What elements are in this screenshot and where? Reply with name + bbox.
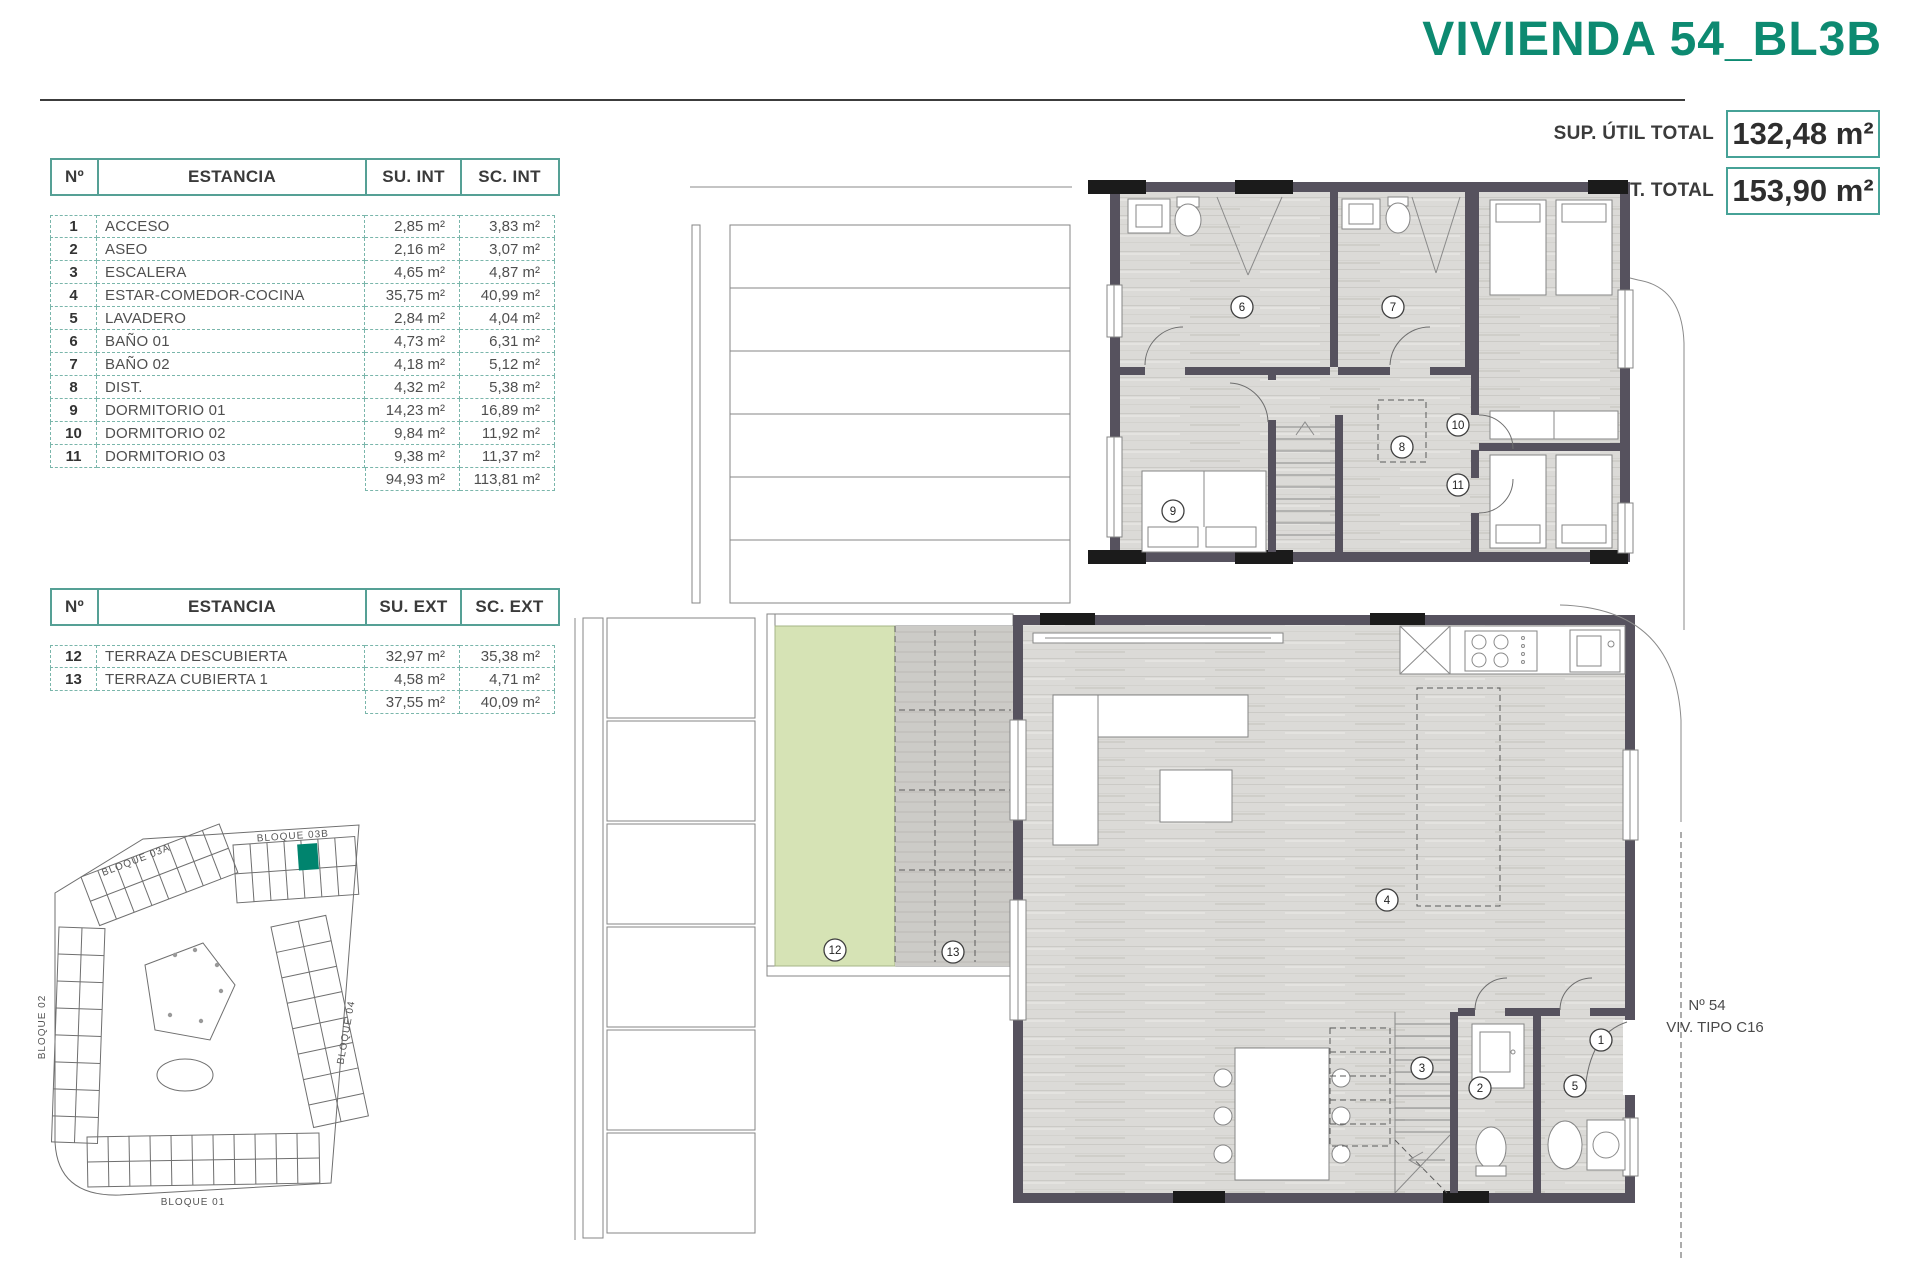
central-amenities bbox=[145, 943, 235, 1091]
room-marker-number: 5 bbox=[1572, 1081, 1578, 1093]
table-row: 13TERRAZA CUBIERTA 14,58 m²4,71 m² bbox=[50, 668, 560, 691]
table-cell: 4,73 m² bbox=[365, 330, 460, 353]
table-cell: BAÑO 01 bbox=[97, 330, 365, 353]
table-cell: DORMITORIO 02 bbox=[97, 422, 365, 445]
table-cell: 7 bbox=[50, 353, 97, 376]
table-cell: 16,89 m² bbox=[460, 399, 555, 422]
table-cell: BAÑO 02 bbox=[97, 353, 365, 376]
table-cell: DORMITORIO 01 bbox=[97, 399, 365, 422]
table-cell: 11,92 m² bbox=[460, 422, 555, 445]
table-cell: ESCALERA bbox=[97, 261, 365, 284]
balcony-rail bbox=[692, 225, 700, 603]
table-cell: 4,65 m² bbox=[365, 261, 460, 284]
table-cell: 11 bbox=[50, 445, 97, 468]
col-header-su-int: SU. INT bbox=[367, 160, 462, 194]
col-header-sc-ext: SC. EXT bbox=[462, 590, 557, 624]
highlighted-unit bbox=[297, 843, 319, 870]
boundary-tick bbox=[1630, 278, 1638, 280]
block-01-label: BLOQUE 01 bbox=[161, 1197, 226, 1208]
table-cell: 3,83 m² bbox=[460, 215, 555, 238]
table-row: 10DORMITORIO 029,84 m²11,92 m² bbox=[50, 422, 560, 445]
site-boundary bbox=[55, 825, 359, 1195]
interior-table-rows: 1ACCESO2,85 m²3,83 m²2ASEO2,16 m²3,07 m²… bbox=[50, 215, 560, 468]
table-cell: 9,38 m² bbox=[365, 445, 460, 468]
table-cell: 6,31 m² bbox=[460, 330, 555, 353]
table-cell: 35,75 m² bbox=[365, 284, 460, 307]
block-02 bbox=[51, 927, 104, 1143]
unit-number-label: Nº 54 bbox=[1688, 997, 1725, 1014]
table-cell: 10 bbox=[50, 422, 97, 445]
col-header-sc-int: SC. INT bbox=[462, 160, 557, 194]
site-plan: BLOQUE 03A BLOQUE 03B BLOQUE 02 BLOQUE 0… bbox=[25, 815, 370, 1215]
terraza-descubierta bbox=[775, 626, 895, 966]
table-cell: 4,58 m² bbox=[365, 668, 460, 691]
table-cell: 6 bbox=[50, 330, 97, 353]
table-cell: LAVADERO bbox=[97, 307, 365, 330]
table-cell: ESTAR-COMEDOR-COCINA bbox=[97, 284, 365, 307]
block-01 bbox=[87, 1133, 320, 1187]
table-row: 3ESCALERA4,65 m²4,87 m² bbox=[50, 261, 560, 284]
room-marker-number: 11 bbox=[1452, 480, 1464, 492]
table-cell: 4,87 m² bbox=[460, 261, 555, 284]
col-header-estancia: ESTANCIA bbox=[99, 590, 367, 624]
table-row: 6BAÑO 014,73 m²6,31 m² bbox=[50, 330, 560, 353]
table-cell: 4,32 m² bbox=[365, 376, 460, 399]
page-title: VIVIENDA 54_BL3B bbox=[1422, 12, 1882, 67]
table-cell: DORMITORIO 03 bbox=[97, 445, 365, 468]
terrace-rail bbox=[583, 618, 603, 1238]
table-cell: 5 bbox=[50, 307, 97, 330]
room-marker-number: 1 bbox=[1598, 1035, 1604, 1047]
terraza-cubierta-deck bbox=[895, 626, 1013, 966]
table-row: 12TERRAZA DESCUBIERTA32,97 m²35,38 m² bbox=[50, 645, 560, 668]
table-cell: 4,71 m² bbox=[460, 668, 555, 691]
table-cell: 4,18 m² bbox=[365, 353, 460, 376]
header-divider bbox=[40, 99, 1685, 101]
table-cell: 2 bbox=[50, 238, 97, 261]
exterior-table-rows: 12TERRAZA DESCUBIERTA32,97 m²35,38 m²13T… bbox=[50, 645, 560, 691]
table-row: 5LAVADERO2,84 m²4,04 m² bbox=[50, 307, 560, 330]
room-marker-number: 8 bbox=[1399, 442, 1405, 454]
table-cell: 2,85 m² bbox=[365, 215, 460, 238]
table-row: 8DIST.4,32 m²5,38 m² bbox=[50, 376, 560, 399]
exterior-table-header: Nº ESTANCIA SU. EXT SC. EXT bbox=[50, 588, 560, 626]
table-row: 1ACCESO2,85 m²3,83 m² bbox=[50, 215, 560, 238]
table-cell: 4 bbox=[50, 284, 97, 307]
block-04-label: BLOQUE 04 bbox=[336, 1000, 358, 1066]
room-marker-number: 3 bbox=[1419, 1063, 1425, 1075]
table-row: 9DORMITORIO 0114,23 m²16,89 m² bbox=[50, 399, 560, 422]
exterior-table-total-row: 37,55 m² 40,09 m² bbox=[50, 691, 560, 714]
table-cell: TERRAZA DESCUBIERTA bbox=[97, 645, 365, 668]
plan-sheet: VIVIENDA 54_BL3B SUP. ÚTIL TOTAL 132,48 … bbox=[0, 0, 1920, 1280]
room-marker-number: 2 bbox=[1477, 1083, 1483, 1095]
room-marker-number: 4 bbox=[1384, 895, 1391, 907]
table-cell: 2,16 m² bbox=[365, 238, 460, 261]
room-marker-number: 6 bbox=[1239, 302, 1245, 314]
table-cell: 9 bbox=[50, 399, 97, 422]
col-header-num: Nº bbox=[52, 160, 99, 194]
table-cell: ASEO bbox=[97, 238, 365, 261]
table-cell: 35,38 m² bbox=[460, 645, 555, 668]
table-cell: ACCESO bbox=[97, 215, 365, 238]
interior-sc-total: 113,81 m² bbox=[460, 468, 555, 491]
upper-floor-plan: 67891011 bbox=[690, 175, 1700, 637]
table-cell: 1 bbox=[50, 215, 97, 238]
table-row: 4ESTAR-COMEDOR-COCINA35,75 m²40,99 m² bbox=[50, 284, 560, 307]
exterior-areas-table: Nº ESTANCIA SU. EXT SC. EXT 12TERRAZA DE… bbox=[50, 588, 560, 714]
room-marker-number: 12 bbox=[829, 945, 842, 957]
col-header-num: Nº bbox=[52, 590, 99, 624]
block-03a-label: BLOQUE 03A bbox=[100, 843, 171, 879]
room-marker-number: 13 bbox=[947, 947, 960, 959]
table-cell: 5,12 m² bbox=[460, 353, 555, 376]
table-cell: DIST. bbox=[97, 376, 365, 399]
table-cell: 3,07 m² bbox=[460, 238, 555, 261]
table-cell: 13 bbox=[50, 668, 97, 691]
table-cell: 5,38 m² bbox=[460, 376, 555, 399]
entry-opening bbox=[1623, 1020, 1637, 1095]
kitchen-counter bbox=[1400, 626, 1625, 674]
interior-su-total: 94,93 m² bbox=[365, 468, 460, 491]
room-marker-number: 7 bbox=[1390, 302, 1396, 314]
plot-boundary-arc bbox=[1638, 280, 1684, 630]
col-header-estancia: ESTANCIA bbox=[99, 160, 367, 194]
sup-util-label: SUP. ÚTIL TOTAL bbox=[1554, 123, 1714, 145]
exterior-su-total: 37,55 m² bbox=[365, 691, 460, 714]
sup-const-value: 153,90 m² bbox=[1726, 167, 1880, 215]
hob bbox=[1465, 631, 1537, 671]
table-cell: 14,23 m² bbox=[365, 399, 460, 422]
sup-util-value: 132,48 m² bbox=[1726, 110, 1880, 158]
exterior-sc-total: 40,09 m² bbox=[460, 691, 555, 714]
table-cell: 40,99 m² bbox=[460, 284, 555, 307]
neighbour-terraces bbox=[607, 618, 755, 1233]
unit-type-label: VIV. TIPO C16 bbox=[1666, 1019, 1764, 1036]
table-row: 2ASEO2,16 m²3,07 m² bbox=[50, 238, 560, 261]
col-header-su-ext: SU. EXT bbox=[367, 590, 462, 624]
table-cell: 12 bbox=[50, 645, 97, 668]
table-cell: 3 bbox=[50, 261, 97, 284]
table-cell: 8 bbox=[50, 376, 97, 399]
neighbour-balconies bbox=[730, 225, 1070, 603]
interior-table-total-row: 94,93 m² 113,81 m² bbox=[50, 468, 560, 491]
room-marker-number: 9 bbox=[1170, 506, 1176, 518]
table-cell: 32,97 m² bbox=[365, 645, 460, 668]
interior-table-header: Nº ESTANCIA SU. INT SC. INT bbox=[50, 158, 560, 196]
block-03b bbox=[233, 836, 359, 902]
table-row: 7BAÑO 024,18 m²5,12 m² bbox=[50, 353, 560, 376]
ground-floor-plan: Nº 54 VIV. TIPO C16 121341235 bbox=[575, 600, 1785, 1260]
block-02-label: BLOQUE 02 bbox=[37, 995, 48, 1060]
table-cell: TERRAZA CUBIERTA 1 bbox=[97, 668, 365, 691]
lavadero-fixtures bbox=[1548, 1120, 1625, 1170]
table-row: 11DORMITORIO 039,38 m²11,37 m² bbox=[50, 445, 560, 468]
bedroom-01-bed bbox=[1142, 471, 1266, 552]
table-cell: 2,84 m² bbox=[365, 307, 460, 330]
room-marker-number: 10 bbox=[1452, 420, 1465, 432]
table-cell: 11,37 m² bbox=[460, 445, 555, 468]
table-cell: 9,84 m² bbox=[365, 422, 460, 445]
table-cell: 4,04 m² bbox=[460, 307, 555, 330]
interior-areas-table: Nº ESTANCIA SU. INT SC. INT 1ACCESO2,85 … bbox=[50, 158, 560, 491]
